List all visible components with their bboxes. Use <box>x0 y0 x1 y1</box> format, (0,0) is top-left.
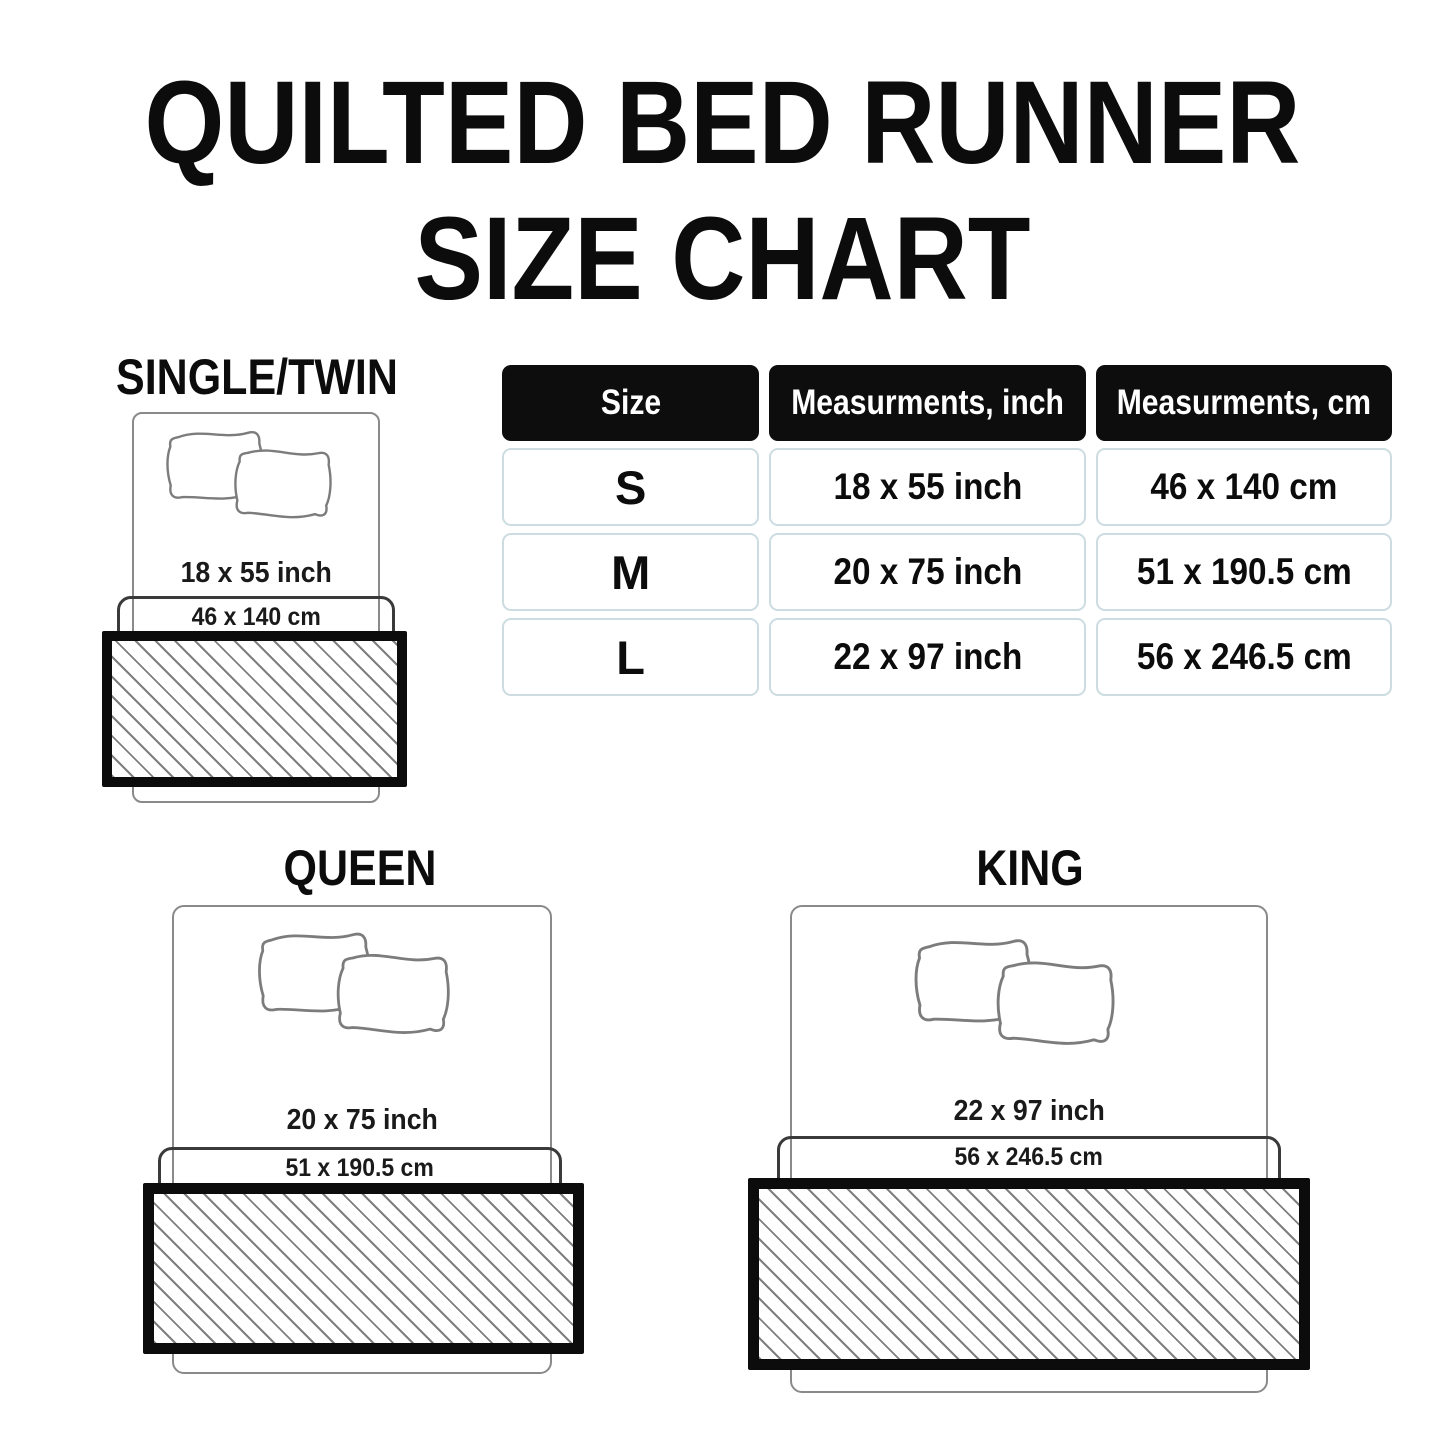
page-title-line1: QUILTED BED RUNNER <box>94 62 1351 186</box>
dimension-cm-label-queen: 51 x 190.5 cm <box>161 1150 559 1183</box>
table-cell-cm-s: 46 x 140 cm <box>1096 448 1392 526</box>
pillow-front-icon <box>997 962 1115 1045</box>
table-cell-cm-l: 56 x 246.5 cm <box>1096 618 1392 696</box>
runner-swatch-single <box>102 631 407 787</box>
size-l-label: L <box>616 630 645 685</box>
pillow-front-icon <box>234 450 331 519</box>
runner-swatch-queen <box>143 1183 584 1354</box>
inch-s-value: 18 x 55 inch <box>833 466 1022 508</box>
cm-l-value: 56 x 246.5 cm <box>1137 636 1352 678</box>
table-cell-inch-m: 20 x 75 inch <box>769 533 1086 611</box>
page-title-line2: SIZE CHART <box>94 198 1351 322</box>
dimension-inch-label-single: 18 x 55 inch <box>132 557 380 590</box>
section-label-queen: QUEEN <box>222 843 497 893</box>
dimension-cm-label-king: 56 x 246.5 cm <box>780 1139 1278 1172</box>
dimension-inch-value-single: 18 x 55 inch <box>180 557 331 590</box>
inch-l-value: 22 x 97 inch <box>833 636 1022 678</box>
table-header-size: Size <box>502 365 759 441</box>
inch-m-value: 20 x 75 inch <box>833 551 1022 593</box>
pillows-icon <box>902 926 1144 1071</box>
table-header-inch: Measurments, inch <box>769 365 1086 441</box>
dimension-inch-label-king: 22 x 97 inch <box>790 1095 1268 1128</box>
size-s-label: S <box>615 460 646 515</box>
pillows-icon <box>156 420 356 540</box>
size-chart-infographic: QUILTED BED RUNNER SIZE CHART Size Measu… <box>0 0 1445 1445</box>
table-cell-inch-s: 18 x 55 inch <box>769 448 1086 526</box>
cm-m-value: 51 x 190.5 cm <box>1137 551 1352 593</box>
dimension-cm-value-king: 56 x 246.5 cm <box>955 1143 1103 1172</box>
table-cell-size-m: M <box>502 533 759 611</box>
table-header-size-label: Size <box>601 383 661 423</box>
table-header-cm: Measurments, cm <box>1096 365 1392 441</box>
table-cell-inch-l: 22 x 97 inch <box>769 618 1086 696</box>
table-header-cm-label: Measurments, cm <box>1117 383 1371 423</box>
runner-swatch-king <box>748 1178 1310 1370</box>
dimension-inch-value-queen: 20 x 75 inch <box>286 1104 437 1137</box>
cm-s-value: 46 x 140 cm <box>1151 466 1338 508</box>
dimension-cm-value-single: 46 x 140 cm <box>191 603 320 632</box>
pillows-icon <box>246 920 478 1059</box>
size-m-label: M <box>611 545 650 600</box>
pillow-front-icon <box>337 954 450 1034</box>
section-label-king: KING <box>892 843 1167 893</box>
table-cell-cm-m: 51 x 190.5 cm <box>1096 533 1392 611</box>
size-table: Size Measurments, inch Measurments, cm S… <box>502 365 1392 696</box>
dimension-cm-label-single: 46 x 140 cm <box>120 599 392 632</box>
table-cell-size-l: L <box>502 618 759 696</box>
dimension-inch-label-queen: 20 x 75 inch <box>172 1104 552 1137</box>
table-header-inch-label: Measurments, inch <box>791 383 1064 423</box>
dimension-inch-value-king: 22 x 97 inch <box>953 1095 1104 1128</box>
dimension-cm-value-queen: 51 x 190.5 cm <box>286 1154 434 1183</box>
section-label-single-twin: SINGLE/TWIN <box>115 352 399 402</box>
table-cell-size-s: S <box>502 448 759 526</box>
